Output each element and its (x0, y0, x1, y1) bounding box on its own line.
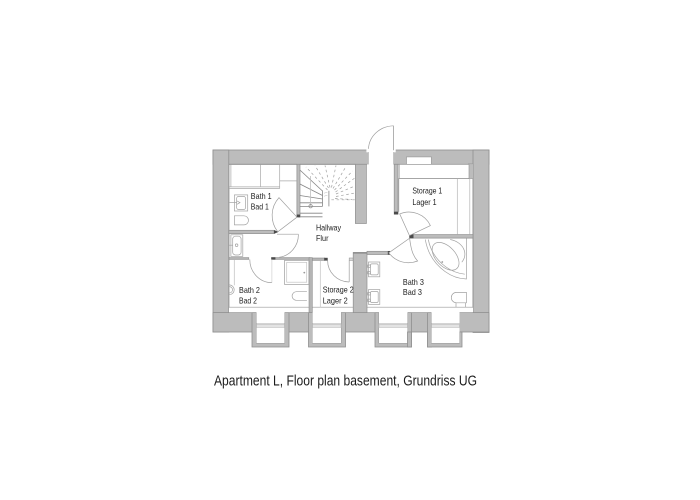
svg-text:Storage 1: Storage 1 (412, 186, 442, 196)
svg-text:Bath 1: Bath 1 (251, 191, 272, 201)
svg-text:Bad 3: Bad 3 (403, 287, 422, 297)
svg-text:Apartment L, Floor plan baseme: Apartment L, Floor plan basement, Grundr… (214, 373, 477, 390)
svg-text:Bath 2: Bath 2 (239, 285, 260, 295)
svg-text:Lager 1: Lager 1 (412, 197, 437, 207)
svg-text:Bad 2: Bad 2 (239, 295, 257, 305)
svg-text:Hallway: Hallway (316, 222, 342, 232)
svg-text:Storage 2: Storage 2 (323, 285, 354, 295)
svg-text:Bath 3: Bath 3 (403, 277, 424, 287)
svg-text:Lager 2: Lager 2 (323, 296, 348, 306)
svg-text:Flur: Flur (316, 233, 329, 243)
svg-text:Bad 1: Bad 1 (251, 202, 269, 212)
